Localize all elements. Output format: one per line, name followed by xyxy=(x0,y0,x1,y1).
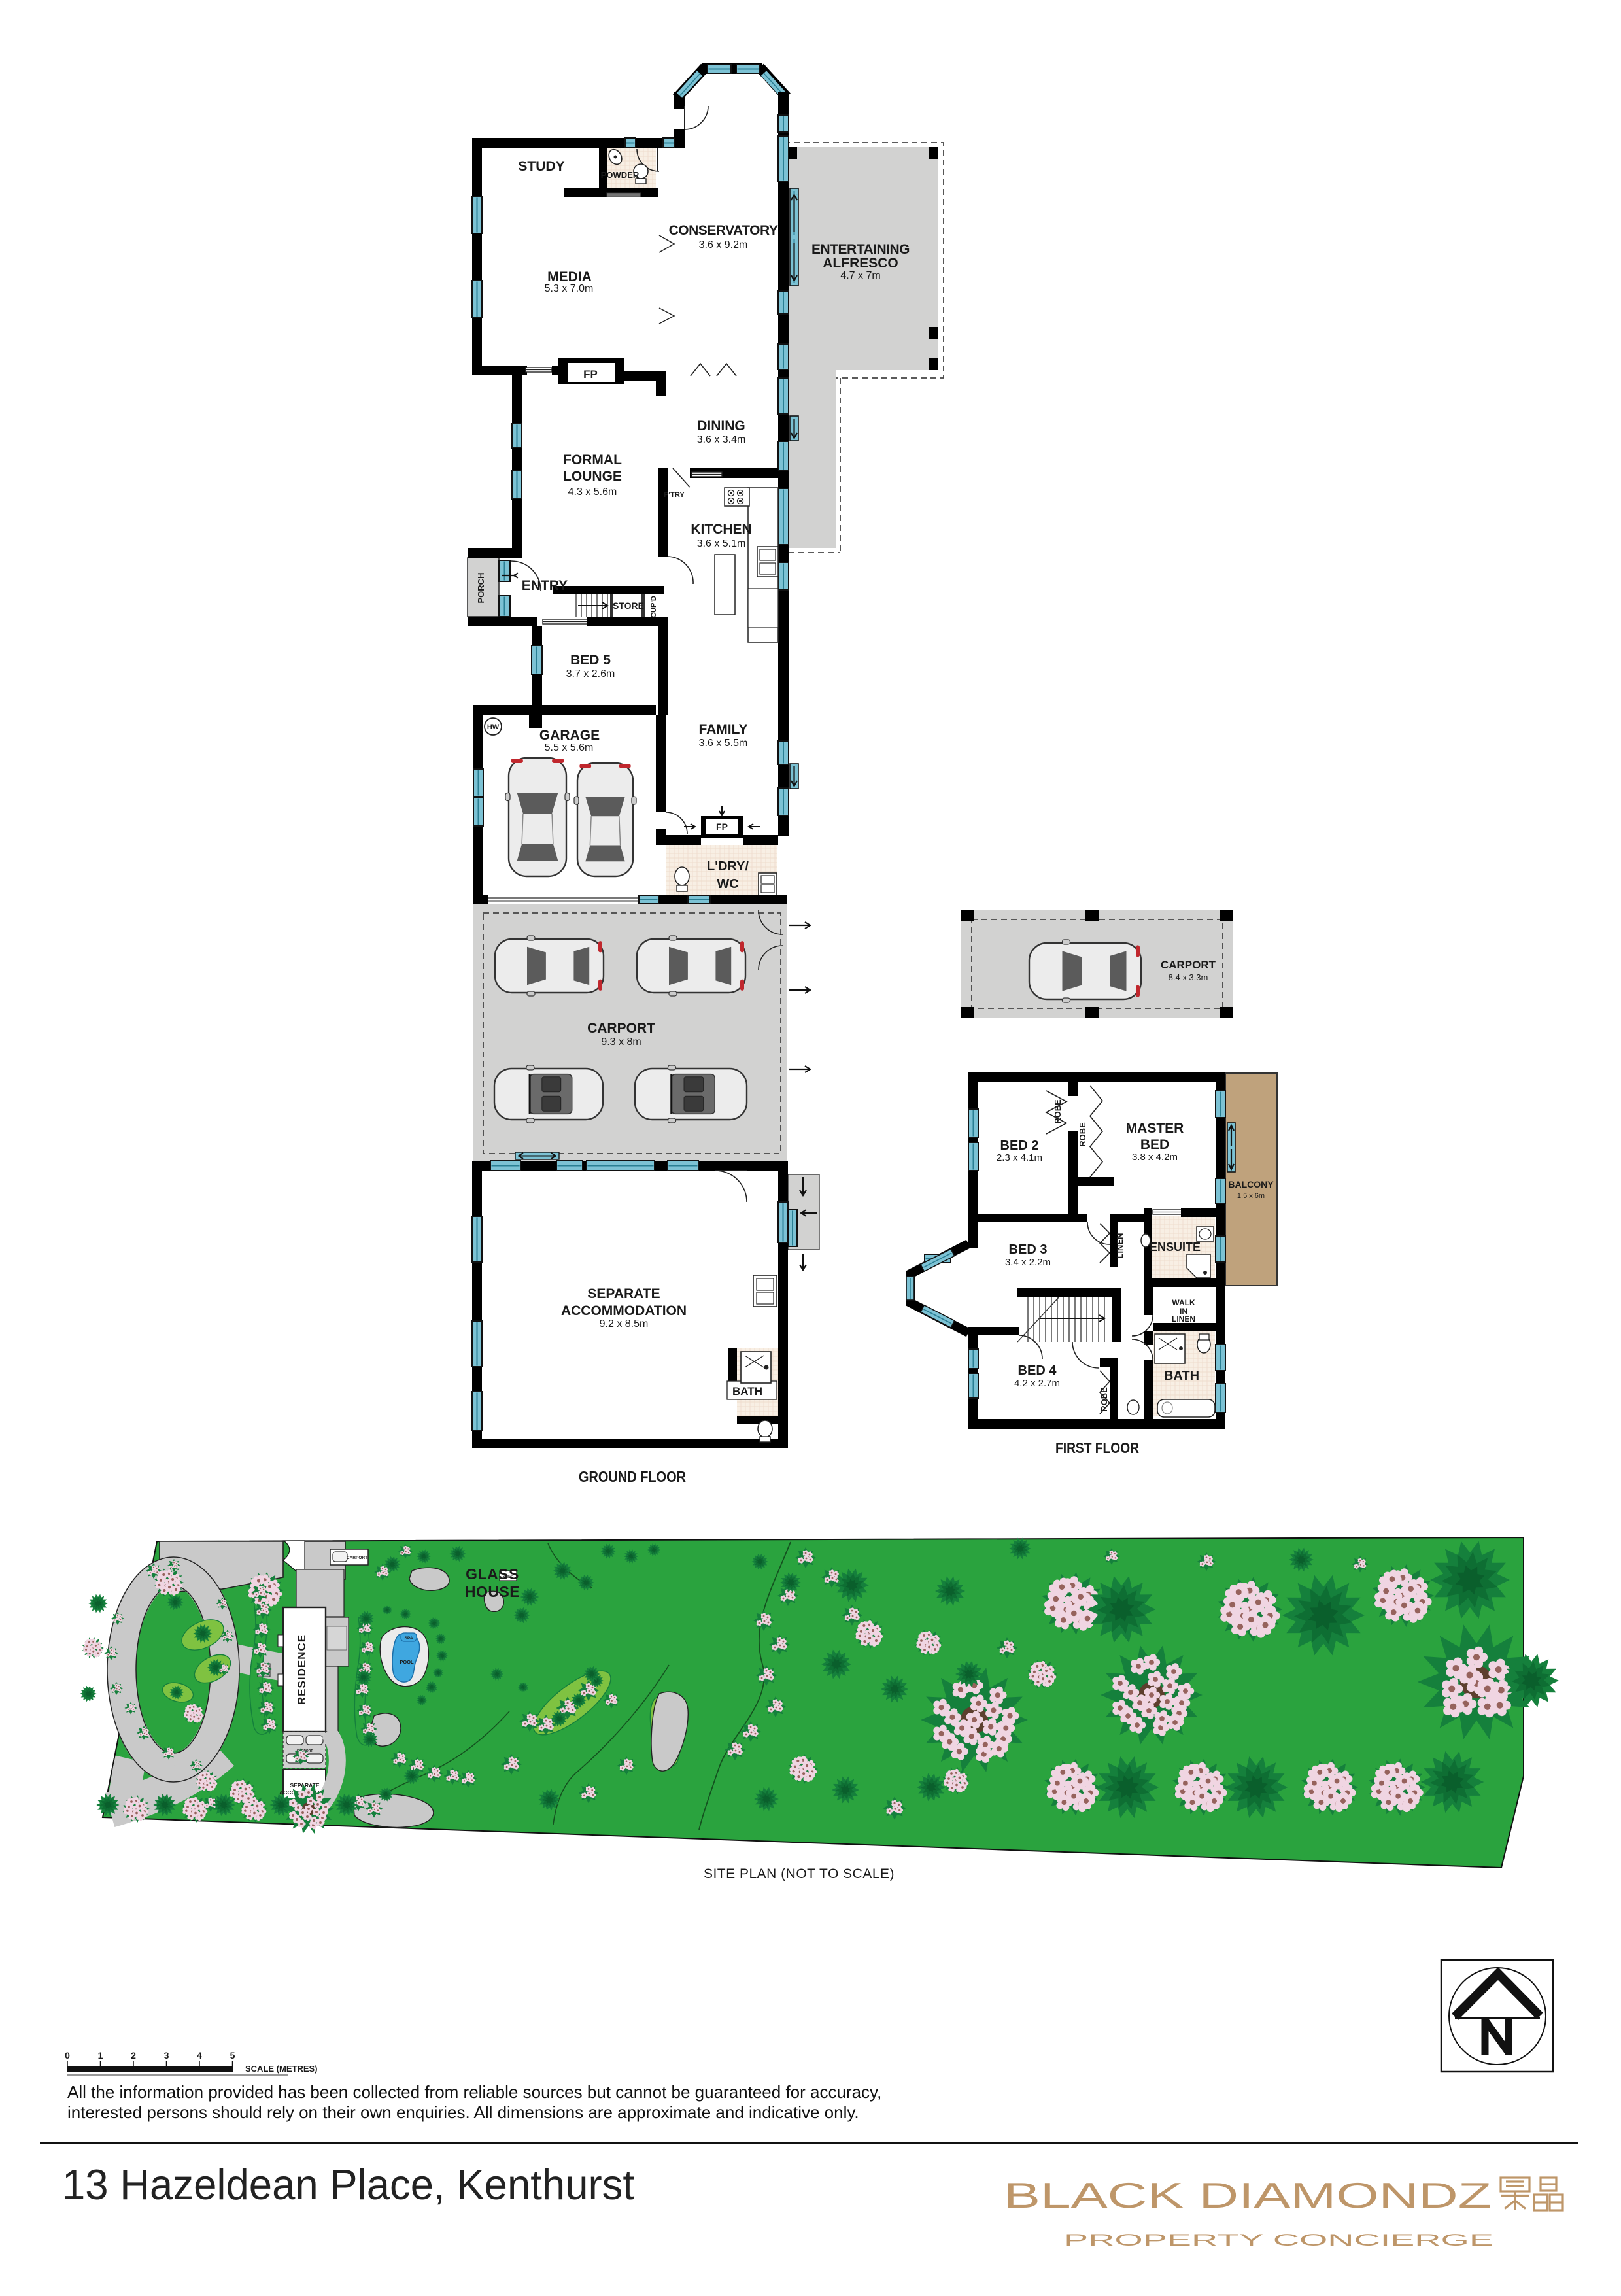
svg-text:L'DRY/: L'DRY/ xyxy=(707,859,749,874)
svg-text:ROBE: ROBE xyxy=(1053,1099,1063,1124)
svg-text:PROPERTY CONCIERGE: PROPERTY CONCIERGE xyxy=(1064,2231,1493,2250)
svg-text:1: 1 xyxy=(98,2050,103,2061)
svg-text:DINING: DINING xyxy=(697,419,745,434)
svg-text:HW: HW xyxy=(487,723,500,731)
svg-text:FIRST FLOOR: FIRST FLOOR xyxy=(1055,1439,1139,1456)
svg-text:POWDER: POWDER xyxy=(601,170,640,180)
svg-text:LOUNGE: LOUNGE xyxy=(563,469,622,484)
svg-text:CARPORT: CARPORT xyxy=(347,1556,367,1560)
svg-text:ALFRESCO: ALFRESCO xyxy=(823,256,898,271)
svg-text:9.2 x 8.5m: 9.2 x 8.5m xyxy=(600,1318,649,1329)
svg-text:2: 2 xyxy=(131,2050,136,2061)
svg-text:3.6 x 5.1m: 3.6 x 5.1m xyxy=(697,538,746,549)
svg-text:P'TRY: P'TRY xyxy=(664,491,685,499)
svg-text:MEDIA: MEDIA xyxy=(547,269,592,284)
svg-text:BED 2: BED 2 xyxy=(1000,1139,1039,1153)
svg-text:1.5 x 6m: 1.5 x 6m xyxy=(1237,1192,1265,1200)
svg-text:GLASS: GLASS xyxy=(466,1566,519,1583)
svg-text:4.3 x 5.6m: 4.3 x 5.6m xyxy=(568,487,617,498)
svg-text:13 Hazeldean Place, Kenthurst: 13 Hazeldean Place, Kenthurst xyxy=(62,2161,634,2208)
svg-text:WC: WC xyxy=(717,877,738,891)
svg-text:3.4 x 2.2m: 3.4 x 2.2m xyxy=(1005,1257,1051,1268)
svg-text:MASTER: MASTER xyxy=(1126,1121,1184,1136)
svg-text:KITCHEN: KITCHEN xyxy=(691,522,751,537)
svg-text:FP: FP xyxy=(583,368,598,381)
svg-text:SCALE (METRES): SCALE (METRES) xyxy=(245,2064,318,2074)
svg-text:All the information provided h: All the information provided has been co… xyxy=(67,2082,881,2102)
svg-text:BED 5: BED 5 xyxy=(570,653,611,668)
svg-text:ROBE: ROBE xyxy=(1099,1387,1109,1412)
svg-text:3.6 x 5.5m: 3.6 x 5.5m xyxy=(699,738,748,749)
svg-text:BATH: BATH xyxy=(1164,1369,1199,1383)
svg-text:BED 3: BED 3 xyxy=(1009,1242,1048,1257)
svg-text:FORMAL: FORMAL xyxy=(563,453,622,468)
svg-text:3.6 x 9.2m: 3.6 x 9.2m xyxy=(699,239,748,250)
svg-text:interested persons should rely: interested persons should rely on their … xyxy=(67,2102,859,2122)
svg-text:FAMILY: FAMILY xyxy=(698,722,747,737)
svg-text:CARPORT: CARPORT xyxy=(1161,959,1216,971)
svg-text:POOL: POOL xyxy=(400,1659,414,1665)
svg-text:CARPORT: CARPORT xyxy=(587,1021,655,1036)
svg-text:SEPARATE: SEPARATE xyxy=(587,1286,660,1301)
svg-text:9.3 x 8m: 9.3 x 8m xyxy=(601,1037,641,1048)
svg-text:LINEN: LINEN xyxy=(1172,1314,1195,1324)
svg-text:BED: BED xyxy=(1140,1137,1169,1152)
svg-text:GROUND FLOOR: GROUND FLOOR xyxy=(579,1468,686,1485)
svg-text:2.3 x 4.1m: 2.3 x 4.1m xyxy=(997,1152,1042,1163)
svg-text:RESIDENCE: RESIDENCE xyxy=(296,1634,308,1705)
svg-text:3.6 x 3.4m: 3.6 x 3.4m xyxy=(697,434,746,445)
svg-text:5.3 x 7.0m: 5.3 x 7.0m xyxy=(545,283,594,294)
svg-text:4.2 x 2.7m: 4.2 x 2.7m xyxy=(1014,1378,1060,1389)
svg-text:STORE: STORE xyxy=(613,600,644,611)
svg-text:ENTERTAINING: ENTERTAINING xyxy=(811,242,910,257)
svg-text:WALK: WALK xyxy=(1172,1298,1195,1307)
svg-text:CUP'D: CUP'D xyxy=(650,596,658,618)
svg-text:ENSUITE: ENSUITE xyxy=(1150,1241,1201,1254)
svg-text:LINEN: LINEN xyxy=(1115,1233,1125,1259)
svg-text:ROBE: ROBE xyxy=(1078,1122,1087,1147)
svg-text:BALCONY: BALCONY xyxy=(1228,1179,1274,1190)
svg-text:PORCH: PORCH xyxy=(476,573,486,604)
svg-text:5: 5 xyxy=(230,2050,235,2061)
svg-text:4: 4 xyxy=(197,2050,202,2061)
svg-text:3.7 x 2.6m: 3.7 x 2.6m xyxy=(566,668,615,679)
svg-text:4.7 x 7m: 4.7 x 7m xyxy=(840,270,880,281)
svg-text:CONSERVATORY: CONSERVATORY xyxy=(669,223,778,238)
svg-text:BLACK DIAMONDZ: BLACK DIAMONDZ xyxy=(1004,2175,1492,2216)
svg-text:BATH: BATH xyxy=(732,1385,762,1397)
svg-text:HOUSE: HOUSE xyxy=(465,1583,520,1600)
svg-text:SITE PLAN (NOT TO SCALE): SITE PLAN (NOT TO SCALE) xyxy=(704,1866,895,1881)
svg-text:0: 0 xyxy=(65,2050,70,2061)
svg-text:8.4 x 3.3m: 8.4 x 3.3m xyxy=(1169,972,1208,982)
svg-text:FP: FP xyxy=(716,821,728,832)
svg-text:ACCOMMODATION: ACCOMMODATION xyxy=(561,1303,687,1318)
svg-text:BED 4: BED 4 xyxy=(1018,1363,1057,1378)
svg-text:3.8 x 4.2m: 3.8 x 4.2m xyxy=(1132,1152,1178,1163)
svg-text:ENTRY: ENTRY xyxy=(522,578,568,593)
svg-text:SPA: SPA xyxy=(405,1636,413,1641)
svg-text:STUDY: STUDY xyxy=(518,159,564,174)
svg-text:5.5 x 5.6m: 5.5 x 5.6m xyxy=(545,742,594,753)
svg-text:3: 3 xyxy=(164,2050,169,2061)
svg-text:GARAGE: GARAGE xyxy=(539,728,600,743)
